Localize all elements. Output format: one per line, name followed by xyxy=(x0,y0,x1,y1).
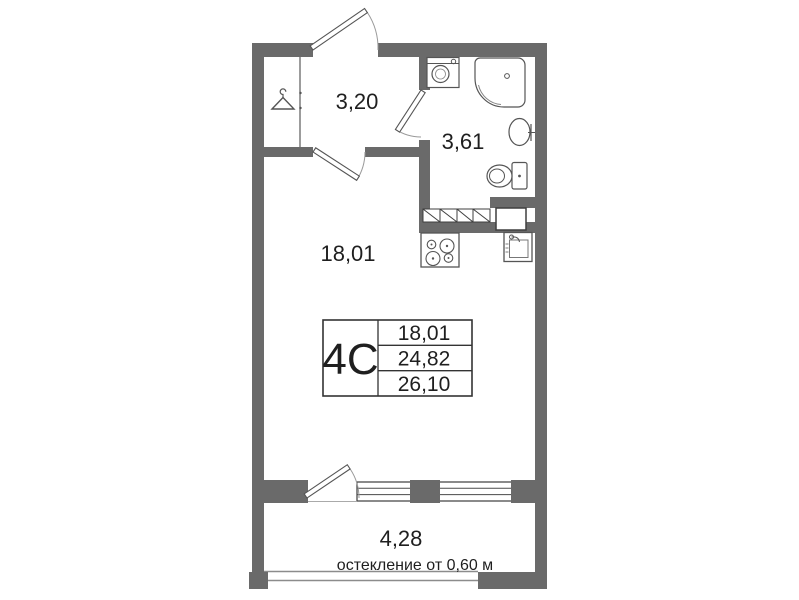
vent-hatch xyxy=(423,209,490,222)
washing-machine-icon xyxy=(427,58,459,88)
balcony-door-leaf xyxy=(304,465,350,498)
stove-icon xyxy=(421,233,459,267)
burner-dot-2 xyxy=(446,245,448,247)
entry-door-leaf xyxy=(310,8,367,50)
hallway-area-label: 3,20 xyxy=(336,89,379,114)
closet-door-dot-2 xyxy=(299,107,301,109)
burner-dot-4 xyxy=(448,257,450,259)
unit-info-box: 4C 18,01 24,82 26,10 xyxy=(322,320,472,396)
toilet-bowl xyxy=(487,165,512,187)
toilet-icon xyxy=(487,163,527,190)
living-room-door xyxy=(313,148,365,181)
duct-shaft xyxy=(496,208,526,230)
shower-tray-outline xyxy=(475,58,525,107)
living-room-door-leaf xyxy=(313,148,359,181)
balcony-glazing-note: остекление от 0,60 м xyxy=(337,557,493,574)
toilet-tank-button xyxy=(518,175,521,178)
balcony-door xyxy=(304,465,359,498)
hanger-icon xyxy=(272,89,294,109)
floorplan-drawing: 4C 18,01 24,82 26,10 3,20 3,61 18,01 4,2… xyxy=(0,0,799,600)
sink-bowl xyxy=(509,119,530,146)
hanger-hook xyxy=(280,89,286,98)
burner-dot-1 xyxy=(431,244,433,246)
kitchen-sink-icon xyxy=(504,233,532,262)
unit-type-label: 4C xyxy=(322,335,378,384)
bathroom-door-leaf xyxy=(395,90,425,132)
shower-tray-icon xyxy=(475,58,525,107)
closet xyxy=(272,57,302,147)
unit-area-living: 18,01 xyxy=(398,322,451,345)
living-area-label: 18,01 xyxy=(320,241,375,266)
bathroom-area-label: 3,61 xyxy=(442,129,485,154)
entry-door-arc xyxy=(367,12,378,50)
bathroom-door xyxy=(395,90,425,137)
unit-area-total: 24,82 xyxy=(398,348,451,371)
floorplan-page: 4C 18,01 24,82 26,10 3,20 3,61 18,01 4,2… xyxy=(0,0,799,600)
unit-area-total-with-balcony: 26,10 xyxy=(398,373,451,396)
closet-door-dot-1 xyxy=(299,92,301,94)
balcony-area-label: 4,28 xyxy=(380,526,423,551)
hanger-triangle xyxy=(272,98,294,110)
entry-door xyxy=(310,8,378,50)
bathroom-sink-icon xyxy=(509,119,535,146)
burner-dot-3 xyxy=(432,257,434,259)
